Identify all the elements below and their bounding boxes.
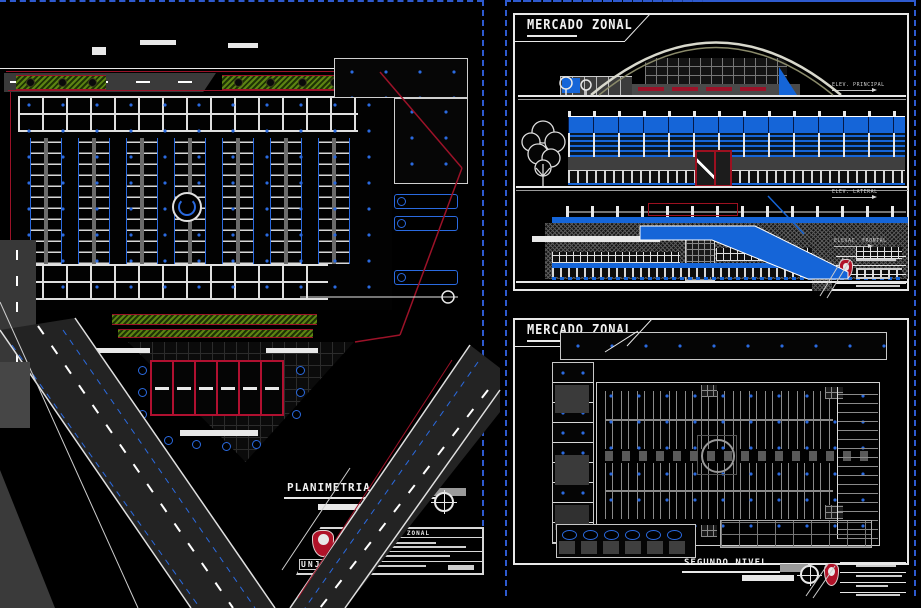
cad-drawing-canvas: PLANIMETRIA GENERAL MERCADO ZONAL UNJBG …	[0, 0, 921, 608]
cad-linework	[0, 0, 921, 608]
